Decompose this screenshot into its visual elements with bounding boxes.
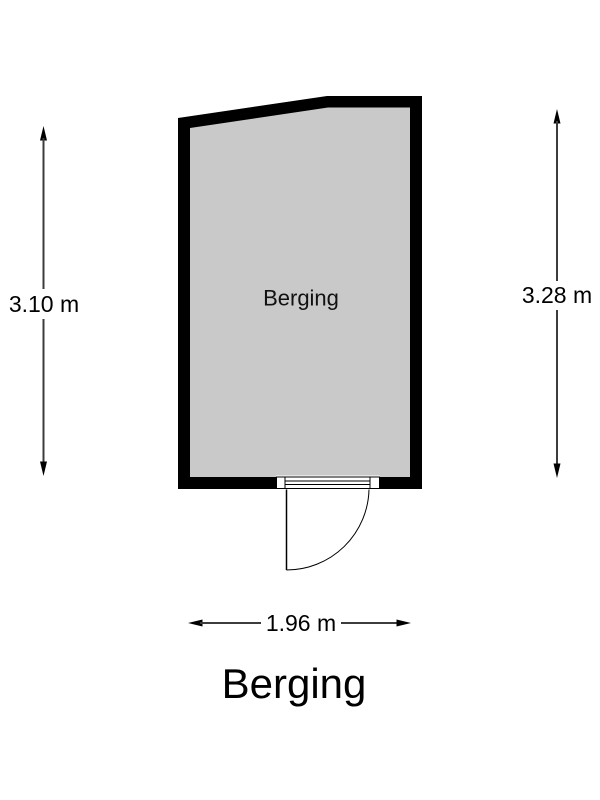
door-swing-arc	[287, 490, 370, 571]
door	[276, 476, 380, 571]
dimension-left: 3.10 m	[9, 126, 79, 476]
arrow-down-icon	[40, 462, 47, 477]
floorplan-title: Berging	[222, 660, 367, 707]
dimension-right-label: 3.28 m	[522, 282, 592, 308]
floorplan-page: Berging 3.10 m 3.28	[0, 0, 600, 800]
dimension-right: 3.28 m	[522, 109, 592, 478]
floorplan-canvas: Berging 3.10 m 3.28	[0, 0, 600, 800]
dimension-left-label: 3.10 m	[9, 291, 79, 317]
door-jamb-right	[370, 477, 380, 489]
arrow-down-icon	[554, 464, 561, 479]
dimension-bottom-label: 1.96 m	[266, 610, 336, 636]
door-jamb-left	[277, 477, 286, 489]
dimension-bottom: 1.96 m	[188, 610, 411, 636]
arrow-right-icon	[397, 620, 412, 627]
room-label: Berging	[263, 286, 339, 311]
door-panel	[285, 477, 370, 489]
